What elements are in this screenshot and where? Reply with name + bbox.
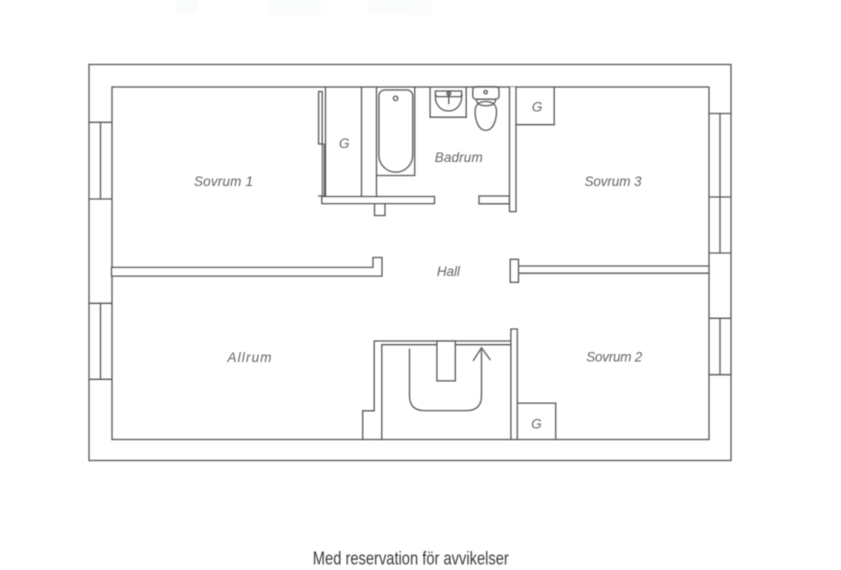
svg-text:Sovrum 3: Sovrum 3 xyxy=(585,174,642,189)
svg-text:Med reservation för avvikelser: Med reservation för avvikelser xyxy=(313,549,509,569)
svg-text:Allrum: Allrum xyxy=(227,350,272,365)
svg-text:G: G xyxy=(531,417,542,432)
svg-text:Sovrum 2: Sovrum 2 xyxy=(586,350,642,365)
svg-text:G: G xyxy=(532,100,543,115)
svg-text:Hall: Hall xyxy=(437,264,461,279)
svg-text:G: G xyxy=(339,136,350,151)
svg-text:Sovrum 1: Sovrum 1 xyxy=(194,174,253,189)
svg-text:Badrum: Badrum xyxy=(435,150,483,165)
